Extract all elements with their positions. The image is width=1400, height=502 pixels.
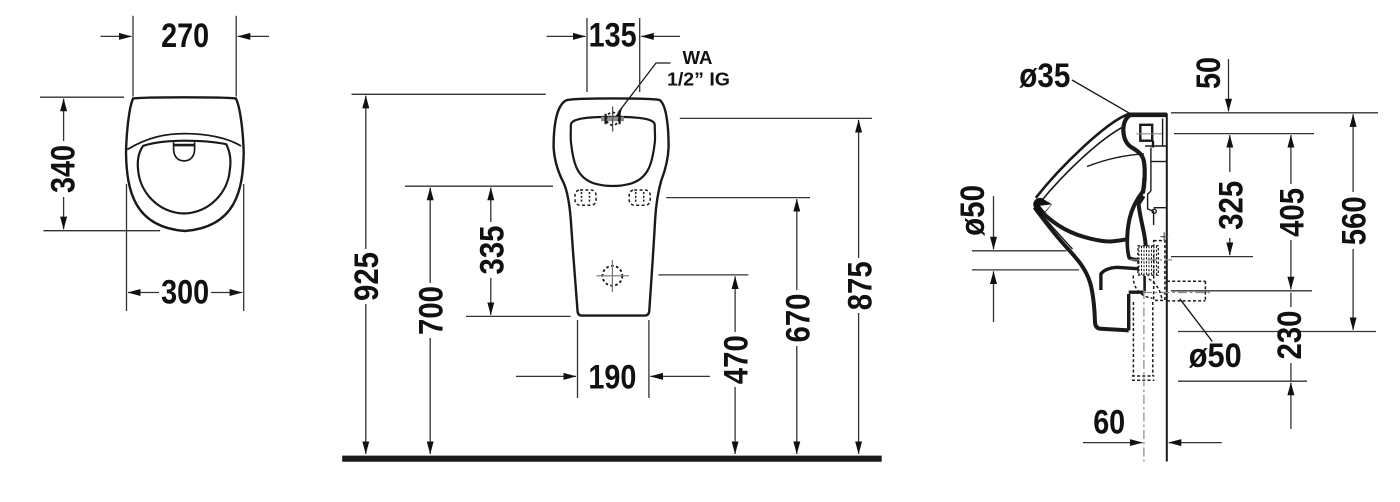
svg-text:325: 325	[1212, 181, 1250, 230]
svg-text:335: 335	[473, 226, 511, 275]
svg-text:700: 700	[413, 286, 451, 335]
svg-text:230: 230	[1271, 311, 1309, 360]
svg-text:670: 670	[780, 294, 818, 343]
svg-text:WA: WA	[683, 48, 713, 68]
svg-text:925: 925	[348, 252, 386, 301]
svg-text:190: 190	[588, 358, 636, 396]
svg-text:60: 60	[1093, 404, 1125, 442]
svg-text:300: 300	[161, 273, 209, 311]
svg-text:ø50: ø50	[1189, 337, 1242, 375]
svg-text:ø50: ø50	[954, 185, 992, 236]
svg-text:ø35: ø35	[1019, 57, 1070, 95]
svg-text:270: 270	[161, 17, 209, 55]
svg-text:560: 560	[1336, 196, 1374, 245]
svg-text:875: 875	[841, 261, 879, 310]
svg-text:50: 50	[1190, 57, 1228, 89]
svg-text:1/2” IG: 1/2” IG	[667, 70, 730, 90]
svg-text:135: 135	[589, 17, 637, 55]
svg-text:340: 340	[44, 145, 82, 193]
svg-text:405: 405	[1273, 188, 1311, 237]
svg-text:470: 470	[718, 335, 756, 384]
